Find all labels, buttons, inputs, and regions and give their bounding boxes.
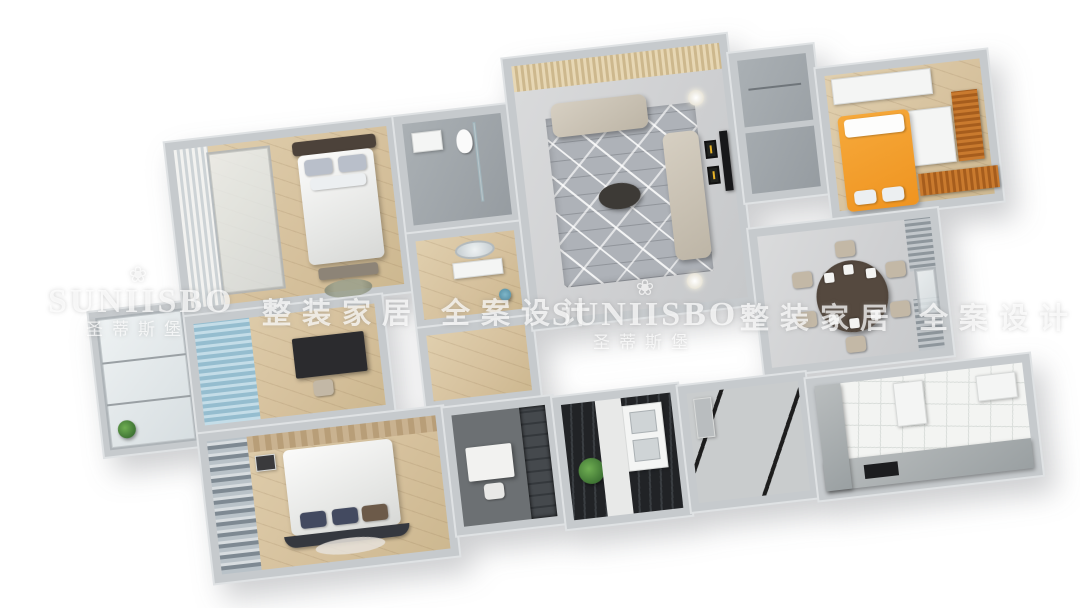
floor-plan-render: ❀ SUNIISBO 圣蒂斯堡 整装家居 全案设计 ❀ SUNIISBO 圣蒂斯… (0, 0, 1080, 608)
place-setting (865, 268, 876, 279)
flower-logo-icon: ❀ (48, 265, 228, 285)
pillow (304, 157, 334, 176)
watermark-brand-en: SUNIISBO (550, 298, 740, 332)
second-bed (282, 438, 401, 536)
dining-chair (885, 260, 907, 278)
dryer-icon (632, 437, 660, 462)
flower-logo-icon: ❀ (550, 278, 740, 298)
pillow (300, 510, 328, 529)
nightstand (255, 454, 277, 472)
refrigerator-icon (893, 380, 928, 427)
washing-machine-icon (629, 409, 657, 434)
watermark-brand-cn: 圣蒂斯堡 (550, 332, 740, 354)
bathroom-floor (402, 113, 512, 226)
wall-art (707, 166, 721, 185)
washer-icon (411, 130, 443, 153)
watermark-brand-cn: 圣蒂斯堡 (48, 319, 228, 341)
master-bed (297, 148, 385, 266)
entry-foyer (678, 372, 819, 512)
pillow (854, 189, 877, 205)
kitchen (806, 354, 1043, 501)
pillow (337, 154, 367, 173)
desk-chair (313, 379, 335, 397)
laundry-balcony (552, 384, 692, 529)
kids-bed-orange (837, 109, 919, 213)
watermark-logo-center: ❀ SUNIISBO 圣蒂斯堡 (550, 278, 740, 354)
sink-counter (975, 371, 1018, 401)
bed-sheet-fold (843, 113, 905, 138)
watermark-logo-left: ❀ SUNIISBO 圣蒂斯堡 (48, 265, 228, 341)
watermark-tagline-right: 整装家居 全案设计 (740, 295, 1079, 337)
watermark-brand-en: SUNIISBO (48, 285, 228, 319)
bathroom (393, 104, 521, 234)
gray-curtain-top (904, 217, 936, 272)
pillow (310, 173, 367, 191)
white-chair (483, 482, 505, 500)
pillow (881, 186, 904, 202)
kids-room-orange (816, 50, 1004, 220)
dining-chair (845, 335, 867, 353)
study-desk (292, 331, 368, 379)
pillow (331, 507, 359, 526)
study-nook (443, 396, 567, 536)
place-setting (824, 272, 835, 283)
dining-room (748, 208, 954, 377)
place-setting (843, 264, 854, 275)
dining-chair (791, 271, 813, 289)
white-desk (465, 443, 515, 482)
storage-closets (728, 44, 829, 203)
dining-chair (834, 240, 856, 258)
second-bedroom (198, 406, 459, 583)
laundry-cabinet (621, 402, 668, 472)
pillow (361, 503, 389, 522)
hallway-floor (426, 325, 532, 402)
wall-art (704, 140, 718, 159)
